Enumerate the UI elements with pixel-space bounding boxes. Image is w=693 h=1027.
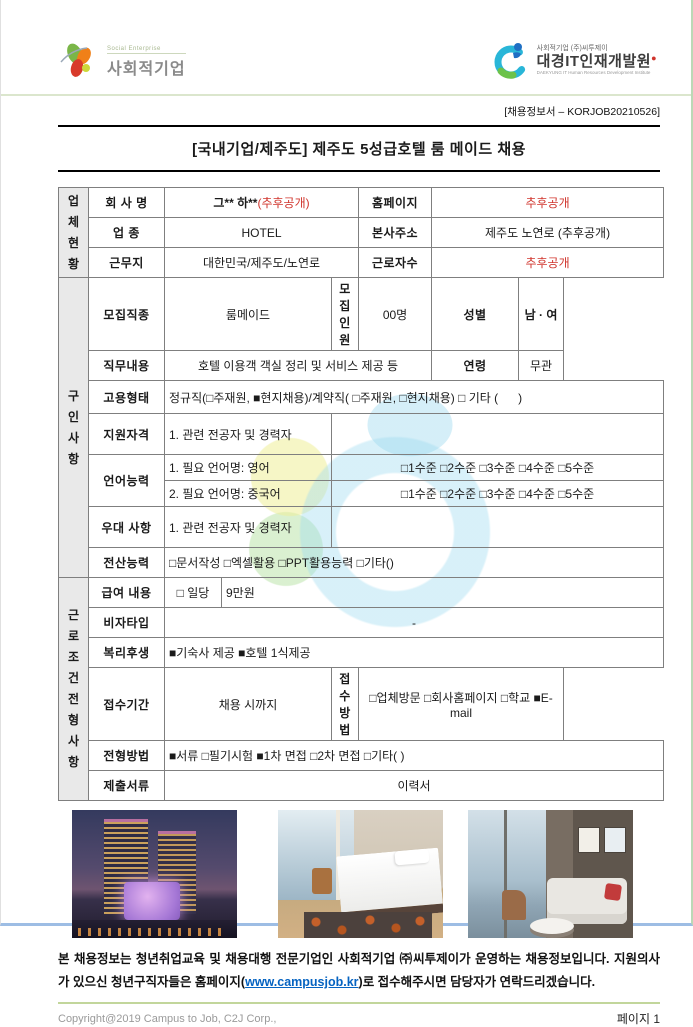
apply-period-label: 접수기간 bbox=[89, 668, 165, 741]
computer-skill-value: □문서작성 □엑셀활용 □PPT활용능력 □기타() bbox=[165, 548, 664, 578]
company-name-note: (추후공개) bbox=[257, 196, 309, 210]
homepage-value: 추후공개 bbox=[432, 188, 664, 218]
language2-name: 2. 필요 언어명: 중국어 bbox=[165, 481, 332, 507]
documents-value: 이력서 bbox=[165, 771, 664, 801]
gender-label: 성별 bbox=[432, 278, 519, 351]
computer-skill-label: 전산능력 bbox=[89, 548, 165, 578]
job-info-table: 업 체 현 황 회 사 명 그** 하**(추후공개) 홈페이지 추후공개 업 … bbox=[58, 187, 664, 801]
gender-value: 남 · 여 bbox=[519, 278, 564, 351]
table-row: 지원자격 1. 관련 전공자 및 경력자 bbox=[59, 414, 664, 455]
doc-code: [채용정보서 – KORJOB20210526] bbox=[1, 96, 691, 123]
daekyung-it-logo: 사회적기업 (주)씨투제이 대경IT인재개발원● DAEKYUNG IT Hum… bbox=[491, 40, 657, 80]
photo-hotel-bedroom bbox=[278, 810, 443, 938]
table-row: 복리후생 ■기숙사 제공 ■호텔 1식제공 bbox=[59, 638, 664, 668]
worksite-label: 근무지 bbox=[89, 248, 165, 278]
table-row: 제출서류 이력서 bbox=[59, 771, 664, 801]
salary-amount: 9만원 bbox=[222, 578, 664, 608]
table-row: 업 체 현 황 회 사 명 그** 하**(추후공개) 홈페이지 추후공개 bbox=[59, 188, 664, 218]
coffee-table bbox=[530, 918, 574, 934]
worksite-value: 대한민국/제주도/노연로 bbox=[165, 248, 359, 278]
armchair bbox=[502, 890, 526, 920]
salary-label: 급여 내용 bbox=[89, 578, 165, 608]
section-conditions: 근 로 조 건 전 형 사 항 bbox=[59, 578, 89, 801]
table-row: 언어능력 1. 필요 언어명: 영어 □1수준 □2수준 □3수준 □4수준 □… bbox=[59, 455, 664, 481]
copyright-text: Copyright@2019 Campus to Job, C2J Corp., bbox=[58, 1013, 276, 1025]
industry-label: 업 종 bbox=[89, 218, 165, 248]
language1-name: 1. 필요 언어명: 영어 bbox=[165, 455, 332, 481]
page-header: Social Enterprise 사회적기업 사회적기업 (주)씨투제이 대경… bbox=[1, 0, 691, 92]
language1-levels: □1수준 □2수준 □3수준 □4수준 □5수준 bbox=[332, 455, 664, 481]
preference-extra bbox=[332, 507, 664, 548]
preference-value: 1. 관련 전공자 및 경력자 bbox=[165, 507, 332, 548]
hq-address-label: 본사주소 bbox=[359, 218, 432, 248]
workers-label: 근로자수 bbox=[359, 248, 432, 278]
wall-art bbox=[579, 828, 599, 852]
table-row: 고용형태 정규직(□주재원, ■현지채용)/계약직( □주재원, □현지채용) … bbox=[59, 381, 664, 414]
wall-art bbox=[605, 828, 625, 852]
document-page: Social Enterprise 사회적기업 사회적기업 (주)씨투제이 대경… bbox=[0, 0, 693, 926]
led-screen bbox=[124, 882, 180, 920]
table-row: 근 로 조 건 전 형 사 항 급여 내용 □ 일당 9만원 bbox=[59, 578, 664, 608]
duties-label: 직무내용 bbox=[89, 351, 165, 381]
age-value: 무관 bbox=[519, 351, 564, 381]
chair bbox=[312, 868, 332, 894]
apply-period-value: 채용 시까지 bbox=[165, 668, 332, 741]
table-row: 근무지 대한민국/제주도/노연로 근로자수 추후공개 bbox=[59, 248, 664, 278]
employment-type-value: 정규직(□주재원, ■현지채용)/계약직( □주재원, □현지채용) □ 기타 … bbox=[165, 381, 664, 414]
social-enterprise-flower-icon bbox=[57, 40, 101, 84]
qualification-extra bbox=[332, 414, 664, 455]
section-recruit: 구 인 사 항 bbox=[59, 278, 89, 578]
logo-subtitle: DAEKYUNG IT Human Resources Development … bbox=[537, 70, 657, 75]
homepage-label: 홈페이지 bbox=[359, 188, 432, 218]
rug bbox=[304, 912, 432, 938]
selection-process-label: 전형방법 bbox=[89, 741, 165, 771]
salary-type: □ 일당 bbox=[165, 578, 222, 608]
campusjob-link[interactable]: www.campusjob.kr bbox=[245, 975, 358, 989]
job-title-value: 룸메이드 bbox=[165, 278, 332, 351]
title-block: [국내기업/제주도] 제주도 5성급호텔 룸 메이드 채용 bbox=[58, 125, 660, 172]
page-footer: Copyright@2019 Campus to Job, C2J Corp.,… bbox=[58, 1002, 660, 1027]
logo-top-line: 사회적기업 (주)씨투제이 bbox=[537, 45, 657, 53]
company-name-label: 회 사 명 bbox=[89, 188, 165, 218]
qualification-value: 1. 관련 전공자 및 경력자 bbox=[165, 414, 332, 455]
table-row: 전형방법 ■서류 □필기시험 ■1차 면접 □2차 면접 □기타( ) bbox=[59, 741, 664, 771]
employment-type-label: 고용형태 bbox=[89, 381, 165, 414]
table-row: 우대 사항 1. 관련 전공자 및 경력자 bbox=[59, 507, 664, 548]
logo-title: 사회적기업 bbox=[107, 55, 186, 79]
logo-title: 대경IT인재개발원 bbox=[537, 53, 651, 70]
page-title: [국내기업/제주도] 제주도 5성급호텔 룸 메이드 채용 bbox=[58, 138, 660, 159]
language-label: 언어능력 bbox=[89, 455, 165, 507]
age-label: 연령 bbox=[432, 351, 519, 381]
selection-process-value: ■서류 □필기시험 ■1차 면접 □2차 면접 □기타( ) bbox=[165, 741, 664, 771]
visa-type-label: 비자타입 bbox=[89, 608, 165, 638]
welfare-value: ■기숙사 제공 ■호텔 1식제공 bbox=[165, 638, 664, 668]
qualification-label: 지원자격 bbox=[89, 414, 165, 455]
section-company: 업 체 현 황 bbox=[59, 188, 89, 278]
workers-value: 추후공개 bbox=[432, 248, 664, 278]
industry-value: HOTEL bbox=[165, 218, 359, 248]
red-pillow bbox=[604, 883, 622, 901]
daekyung-ring-icon bbox=[491, 40, 531, 80]
visa-type-value: - bbox=[165, 608, 664, 638]
table-row: 구 인 사 항 모집직종 룸메이드 모집인원 00명 성별 남 · 여 bbox=[59, 278, 664, 351]
headcount-value: 00명 bbox=[359, 278, 432, 351]
photo-hotel-lounge bbox=[468, 810, 633, 938]
apply-method-label: 접수방법 bbox=[332, 668, 359, 741]
documents-label: 제출서류 bbox=[89, 771, 165, 801]
photo-hotel-exterior-night bbox=[72, 810, 237, 938]
social-enterprise-logo: Social Enterprise 사회적기업 bbox=[57, 40, 186, 84]
duties-value: 호텔 이용객 객실 정리 및 서비스 제공 등 bbox=[165, 351, 432, 381]
headcount-label: 모집인원 bbox=[332, 278, 359, 351]
logo-subtitle: Social Enterprise bbox=[107, 46, 186, 54]
table-row: 접수기간 채용 시까지 접수방법 □업체방문 □회사홈페이지 □학교 ■E-ma… bbox=[59, 668, 664, 741]
table-row: 업 종 HOTEL 본사주소 제주도 노연로 (추후공개) bbox=[59, 218, 664, 248]
welfare-label: 복리후생 bbox=[89, 638, 165, 668]
notice-paragraph: 본 채용정보는 청년취업교육 및 채용대행 전문기업인 사회적기업 ㈜씨투제이가… bbox=[58, 948, 660, 994]
logo-dot: ● bbox=[651, 53, 657, 63]
table-row: 비자타입 - bbox=[59, 608, 664, 638]
photo-strip bbox=[58, 810, 660, 938]
language2-levels: □1수준 □2수준 □3수준 □4수준 □5수준 bbox=[332, 481, 664, 507]
table-row: 직무내용 호텔 이용객 객실 정리 및 서비스 제공 등 연령 무관 bbox=[59, 351, 664, 381]
job-info-table-wrap: 업 체 현 황 회 사 명 그** 하**(추후공개) 홈페이지 추후공개 업 … bbox=[58, 187, 660, 801]
street-lights bbox=[78, 928, 228, 936]
job-title-label: 모집직종 bbox=[89, 278, 165, 351]
preference-label: 우대 사항 bbox=[89, 507, 165, 548]
page-number: 페이지 1 bbox=[617, 1010, 660, 1027]
table-row: 전산능력 □문서작성 □엑셀활용 □PPT활용능력 □기타() bbox=[59, 548, 664, 578]
apply-method-value: □업체방문 □회사홈페이지 □학교 ■E-mail bbox=[359, 668, 564, 741]
pillow bbox=[394, 849, 429, 866]
notice-text-after: )로 접수해주시면 담당자가 연락드리겠습니다. bbox=[359, 975, 596, 989]
hq-address-value: 제주도 노연로 (추후공개) bbox=[432, 218, 664, 248]
company-name-value: 그** 하**(추후공개) bbox=[165, 188, 359, 218]
